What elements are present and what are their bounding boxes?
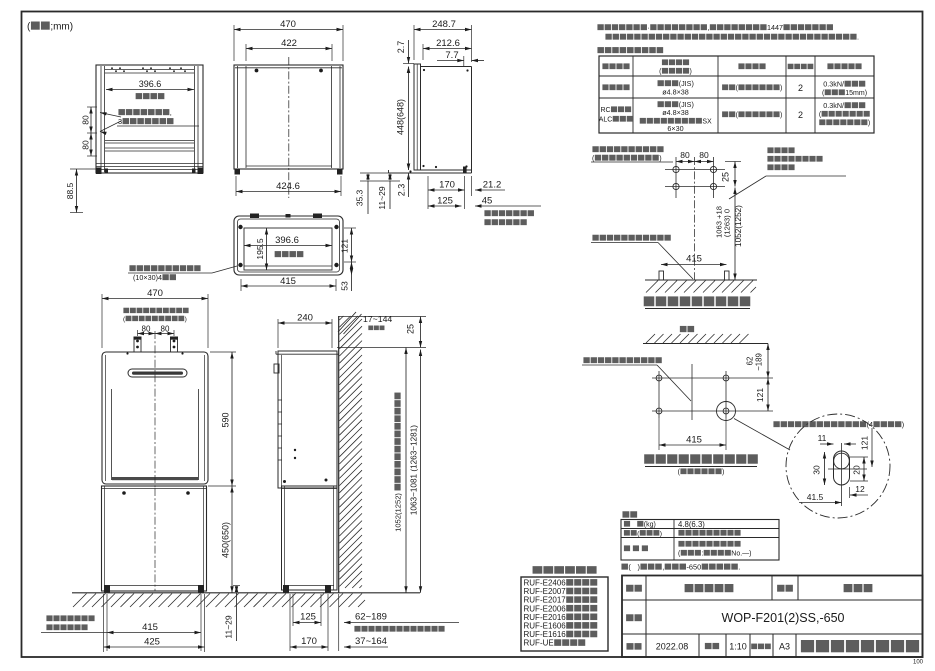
svg-text:80: 80 [81, 140, 91, 150]
svg-text:(10×30)4: (10×30)4 [133, 273, 162, 282]
svg-text:1063~1081 (1263~1281): 1063~1081 (1263~1281) [410, 425, 419, 515]
svg-text:396.6: 396.6 [275, 235, 299, 246]
svg-text:45: 45 [482, 196, 493, 207]
svg-text:7.7: 7.7 [445, 50, 458, 61]
svg-text:41.5: 41.5 [807, 492, 824, 502]
svg-text:): ) [722, 469, 724, 476]
svg-text:0.3kN/: 0.3kN/ [823, 101, 844, 110]
svg-text:): ) [660, 531, 662, 538]
svg-text:35.3: 35.3 [355, 189, 365, 206]
svg-text:1447: 1447 [767, 23, 783, 32]
svg-text:): ) [638, 563, 640, 572]
svg-text:No.—): No.—) [731, 551, 751, 558]
svg-text:248.7: 248.7 [432, 19, 456, 30]
svg-text:RC: RC [600, 107, 610, 114]
svg-text:A3: A3 [779, 642, 790, 652]
svg-text:2.7: 2.7 [396, 41, 406, 54]
svg-text:62: 62 [746, 357, 755, 366]
svg-text::: : [701, 551, 703, 558]
svg-text:80: 80 [680, 150, 690, 160]
svg-text:;mm): ;mm) [50, 22, 73, 33]
svg-text:): ) [868, 120, 870, 127]
svg-text:62~189: 62~189 [355, 612, 387, 623]
svg-text:): ) [902, 420, 904, 429]
svg-text:): ) [780, 85, 782, 92]
svg-text:): ) [185, 316, 187, 323]
svg-text:(kg): (kg) [644, 522, 656, 529]
svg-text:11~29: 11~29 [224, 615, 234, 639]
svg-text:170: 170 [439, 180, 455, 191]
svg-text:80: 80 [699, 150, 709, 160]
svg-text:448(648): 448(648) [396, 99, 406, 135]
svg-text:37~164: 37~164 [355, 636, 387, 647]
svg-text:415: 415 [280, 276, 296, 287]
svg-text:424.6: 424.6 [276, 181, 300, 192]
svg-text:53: 53 [340, 281, 350, 291]
svg-text:ø4.8×38: ø4.8×38 [662, 88, 689, 97]
svg-text:1052(1252): 1052(1252) [394, 493, 403, 532]
svg-text:6×30: 6×30 [667, 124, 683, 133]
svg-text:170: 170 [301, 636, 317, 647]
svg-text:ALC: ALC [599, 117, 613, 124]
svg-text:240: 240 [297, 313, 313, 324]
svg-text:): ) [659, 154, 661, 163]
svg-text:425: 425 [144, 637, 160, 648]
svg-text:): ) [780, 112, 782, 119]
svg-text:SX: SX [702, 119, 712, 126]
svg-text:88.5: 88.5 [65, 182, 75, 199]
svg-text:11: 11 [818, 433, 827, 443]
svg-text:415: 415 [686, 254, 702, 265]
svg-text:422: 422 [281, 38, 297, 49]
svg-text:396.6: 396.6 [139, 79, 162, 89]
svg-text:590: 590 [221, 412, 231, 427]
svg-text:1:10: 1:10 [729, 642, 747, 652]
svg-text:125: 125 [300, 612, 316, 623]
svg-text:,: , [170, 108, 172, 117]
svg-text:195.5: 195.5 [255, 238, 265, 260]
svg-text:RUF-UE: RUF-UE [524, 639, 554, 648]
svg-text:100: 100 [913, 660, 924, 666]
svg-text:450(650): 450(650) [221, 522, 231, 558]
svg-text:,: , [707, 23, 709, 32]
svg-text:2: 2 [798, 110, 803, 120]
svg-text:21.2: 21.2 [483, 180, 502, 191]
svg-text:): ) [690, 69, 692, 76]
svg-text:415: 415 [142, 622, 158, 633]
svg-text:2022.08: 2022.08 [656, 642, 689, 652]
svg-text:80: 80 [81, 115, 91, 125]
svg-text:15mm): 15mm) [845, 90, 867, 97]
svg-text:,: , [662, 563, 664, 572]
svg-text:121: 121 [860, 436, 870, 450]
svg-text:(1263) 0: (1263) 0 [723, 209, 732, 237]
svg-text:2: 2 [798, 83, 803, 93]
svg-text:-650: -650 [686, 563, 701, 572]
svg-text:.: . [738, 563, 740, 572]
svg-text:25: 25 [721, 172, 731, 182]
svg-text:WOP-F201(2)SS,-650: WOP-F201(2)SS,-650 [722, 611, 845, 625]
svg-text:30: 30 [812, 465, 822, 475]
svg-text:121: 121 [755, 388, 765, 402]
svg-text:17~144: 17~144 [363, 314, 392, 324]
svg-text:20: 20 [852, 465, 862, 475]
svg-text:0.3kN/: 0.3kN/ [823, 80, 844, 89]
svg-text:121: 121 [340, 239, 350, 253]
svg-text:125: 125 [437, 196, 453, 207]
svg-text:470: 470 [280, 19, 296, 30]
svg-text:80: 80 [161, 325, 170, 334]
svg-text:.: . [857, 33, 859, 42]
svg-text:80: 80 [142, 325, 151, 334]
svg-text:415: 415 [686, 435, 702, 446]
svg-text:470: 470 [147, 288, 163, 299]
svg-text:4.8(6.3): 4.8(6.3) [678, 520, 705, 529]
svg-text:2.3: 2.3 [397, 184, 407, 197]
svg-text:~189: ~189 [755, 353, 764, 371]
svg-text:212.6: 212.6 [436, 38, 460, 49]
svg-text:25: 25 [406, 324, 416, 334]
svg-text:11~29: 11~29 [377, 186, 387, 210]
svg-text:1052(1252): 1052(1252) [734, 205, 743, 247]
svg-text:12: 12 [855, 484, 865, 494]
svg-text:ø4.8×38: ø4.8×38 [662, 108, 689, 117]
svg-text:·: · [647, 23, 649, 32]
